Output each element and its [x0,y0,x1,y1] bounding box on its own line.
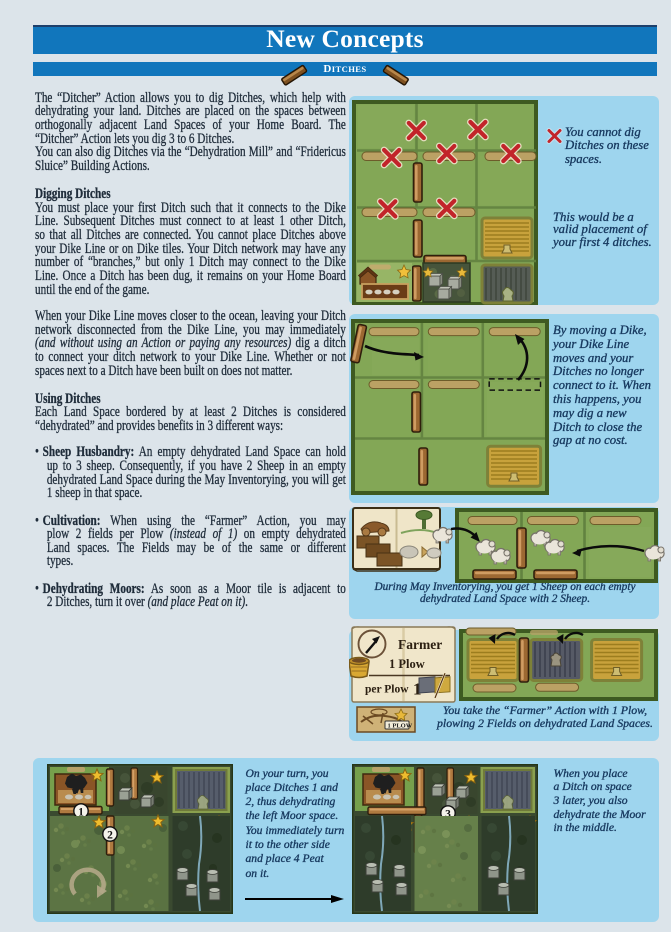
svg-text:1 Plow: 1 Plow [389,657,425,671]
svg-text:2: 2 [107,830,113,842]
svg-text:1 PLOW: 1 PLOW [388,723,413,730]
svg-text:per Plow: per Plow [365,684,409,696]
svg-text:Farmer: Farmer [398,637,442,652]
